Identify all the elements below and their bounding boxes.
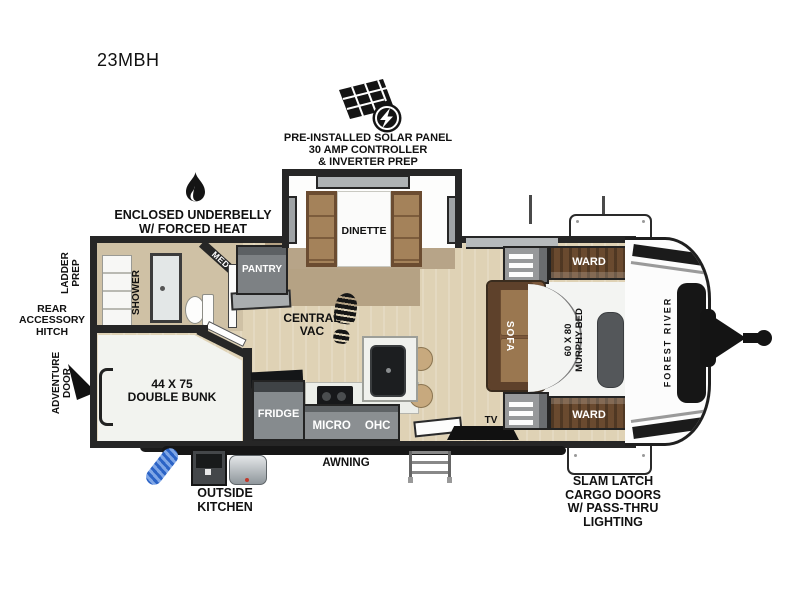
underbelly-callout: ENCLOSED UNDERBELLY W/ FORCED HEAT — [108, 209, 278, 236]
bunk-label: 44 X 75 DOUBLE BUNK — [107, 378, 237, 404]
pantry-label: PANTRY — [238, 264, 286, 275]
bench-cushion — [394, 195, 419, 263]
fridge: FRIDGE — [252, 380, 305, 441]
micro-label: MICRO — [313, 420, 351, 432]
awning-label: AWNING — [300, 457, 392, 469]
floorplan-canvas: 23MBH PRE-INSTALLED SOLAR PANEL 30 AMP C… — [0, 0, 800, 600]
boot-heel — [332, 328, 350, 344]
solar-callout: PRE-INSTALLED SOLAR PANEL 30 AMP CONTROL… — [283, 133, 453, 169]
hitch-a-frame — [714, 317, 746, 359]
shower-label: SHOWER — [131, 270, 142, 315]
overhead-cabinet: MICRO OHC — [303, 404, 400, 441]
tank-valve — [245, 478, 249, 482]
dresser-side-shadow — [539, 248, 547, 282]
kitchen-island — [362, 336, 418, 402]
sofa-label-wrap: SOFA — [498, 310, 522, 362]
outside-kitchen-unit — [191, 449, 227, 486]
rear-hitch-label: REAR ACCESSORY HITCH — [6, 304, 98, 338]
dinette-table: DINETTE — [337, 191, 391, 267]
dinette-label: DINETTE — [338, 226, 390, 237]
pantry-top-shadow — [238, 247, 286, 255]
outside-kitchen-label: OUTSIDE KITCHEN — [180, 487, 270, 514]
shower-label-wrap: SHOWER — [122, 262, 150, 322]
dresser-stripe — [509, 402, 533, 407]
bathroom-bottom-wall — [90, 325, 208, 333]
sink-drain — [386, 368, 391, 373]
dinette-window-right — [447, 196, 457, 244]
bench-cushion — [309, 195, 334, 263]
sofa-label: SOFA — [505, 320, 516, 351]
step-foot — [408, 477, 413, 483]
wardrobe-top: WARD — [549, 246, 629, 280]
dresser-stripe — [509, 254, 533, 259]
step-foot — [447, 477, 452, 483]
outside-faucet — [205, 469, 211, 475]
bunk-right-wall — [243, 348, 252, 441]
front-cap: FOREST RIVER — [625, 237, 711, 446]
entry-steps — [409, 451, 451, 478]
ward-bottom-label: WARD — [551, 409, 627, 421]
hitch-jack — [700, 309, 716, 367]
boot-sole — [333, 291, 360, 325]
dresser-stripe — [509, 272, 533, 277]
dinette-window-left — [287, 196, 297, 244]
solar-panel-icon — [335, 77, 407, 135]
shower-stall — [150, 253, 182, 323]
dinette-window-top — [316, 175, 410, 189]
dresser-bottom — [503, 392, 549, 430]
fridge-top-shadow — [254, 382, 303, 392]
ward-edge — [551, 272, 627, 278]
flame-icon — [184, 172, 207, 205]
outside-sink — [196, 454, 222, 468]
dinette-slide: DINETTE — [282, 169, 462, 269]
dresser-top — [503, 246, 549, 284]
dresser-side-shadow — [539, 394, 547, 428]
pantry-cabinet: PANTRY — [236, 245, 288, 295]
ward-top-label: WARD — [551, 256, 627, 268]
brand-label: FOREST RIVER — [662, 296, 672, 387]
burner — [337, 392, 346, 401]
adventure-door-frame — [99, 368, 113, 426]
dinette-bench — [391, 191, 422, 267]
ward-edge — [551, 398, 627, 404]
murphy-label-wrap: 60 X 80 MURPHY BED — [552, 296, 596, 384]
model-title: 23MBH — [97, 50, 160, 71]
shower-head-icon — [160, 286, 165, 291]
burner — [322, 392, 331, 401]
ohc-label: OHC — [365, 420, 391, 432]
dresser-stripe — [509, 263, 533, 268]
murphy-bed-bolster — [597, 312, 624, 388]
cargo-doors-label: SLAM LATCH CARGO DOORS W/ PASS-THRU LIGH… — [545, 475, 681, 529]
dresser-stripe — [509, 420, 533, 425]
wardrobe-bottom: WARD — [549, 396, 629, 430]
kitchen-sink — [370, 345, 406, 397]
tv-label: TV — [481, 416, 501, 427]
dresser-stripe — [509, 411, 533, 416]
hitch-coupler — [756, 330, 772, 346]
roof-vent-mark — [529, 195, 532, 224]
dinette-bench — [306, 191, 337, 267]
ohc-top-shadow — [305, 406, 398, 412]
water-heater-tank — [229, 455, 267, 485]
fridge-label: FRIDGE — [254, 408, 303, 420]
